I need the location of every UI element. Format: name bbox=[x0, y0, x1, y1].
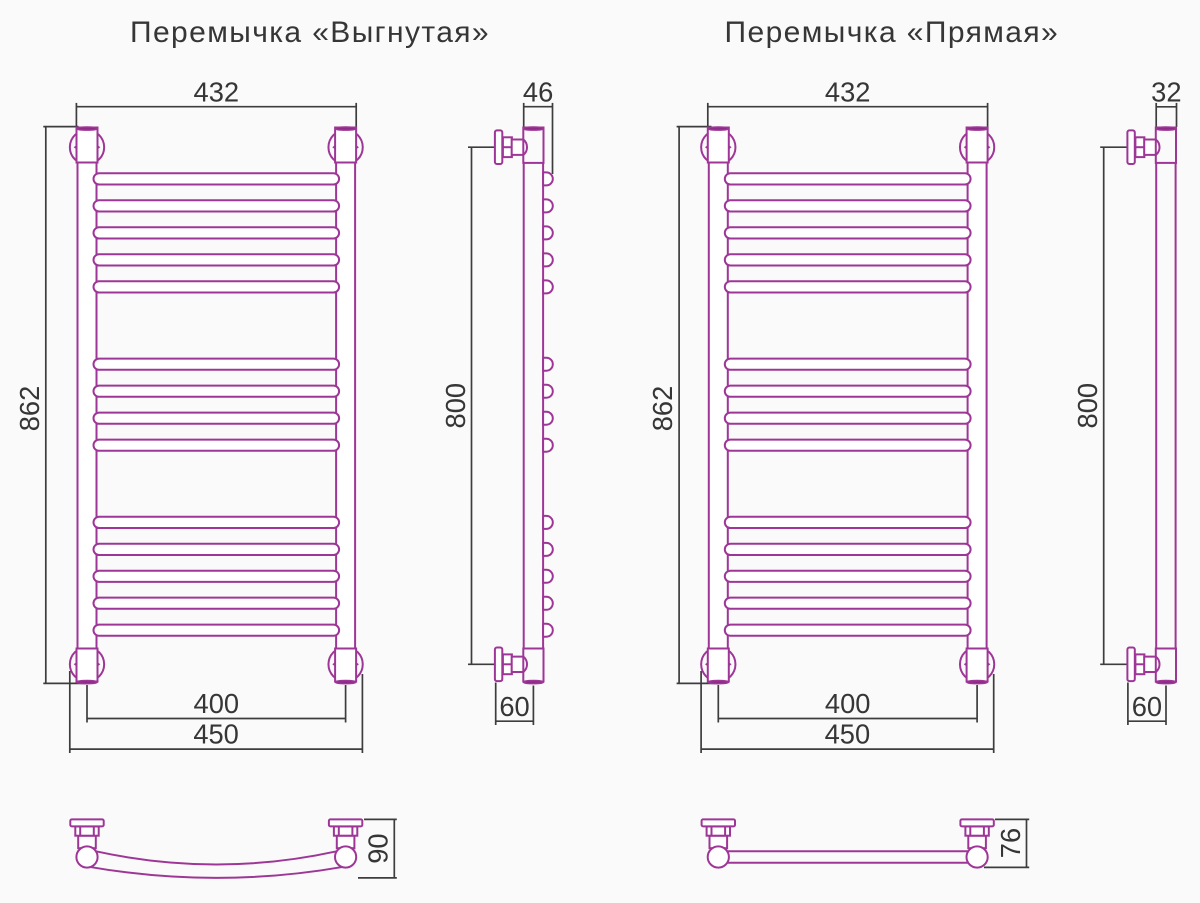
svg-text:432: 432 bbox=[825, 76, 871, 107]
svg-text:Перемычка «Выгнутая»: Перемычка «Выгнутая» bbox=[130, 16, 490, 49]
svg-text:450: 450 bbox=[825, 719, 871, 750]
svg-text:90: 90 bbox=[363, 833, 394, 863]
svg-text:76: 76 bbox=[995, 828, 1026, 858]
svg-text:800: 800 bbox=[440, 383, 471, 429]
svg-text:32: 32 bbox=[1151, 76, 1181, 107]
svg-text:400: 400 bbox=[825, 688, 871, 719]
svg-text:450: 450 bbox=[193, 719, 239, 750]
svg-text:862: 862 bbox=[647, 386, 678, 432]
svg-text:862: 862 bbox=[14, 386, 45, 432]
svg-text:Перемычка «Прямая»: Перемычка «Прямая» bbox=[725, 16, 1060, 49]
svg-text:800: 800 bbox=[1072, 383, 1103, 429]
svg-text:60: 60 bbox=[1132, 691, 1162, 722]
svg-text:432: 432 bbox=[194, 76, 240, 107]
svg-text:46: 46 bbox=[523, 76, 553, 107]
svg-text:60: 60 bbox=[499, 691, 529, 722]
svg-text:400: 400 bbox=[194, 688, 240, 719]
